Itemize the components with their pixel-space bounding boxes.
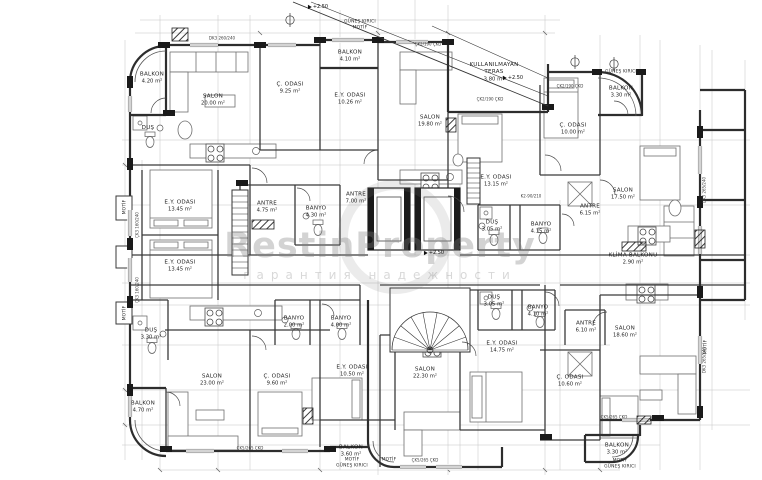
toilet-icon [337,324,347,340]
toilet-icon [313,220,323,236]
toilet-icon [535,312,545,328]
oval-table [669,200,681,216]
window [400,464,426,470]
stair-flight [232,190,248,275]
bed [258,392,302,436]
kitchen-counter [190,306,282,320]
spiral-stair [390,288,470,353]
stove-icon [206,144,224,162]
bed [640,146,680,200]
sink-icon [253,148,260,155]
shower-tray-icon [133,116,147,130]
wardrobe [568,182,592,206]
toilet-icon [491,304,501,320]
shower-tray-icon [480,207,492,219]
window [332,37,364,43]
window [190,42,218,48]
toilet-icon [145,132,155,148]
toilet-icon [147,338,157,354]
window [697,336,703,364]
toilet-icon [291,324,301,340]
roof-diagonals [293,2,548,106]
stove-icon [205,308,223,326]
sofa [400,52,452,104]
toilet-icon [489,230,499,246]
window [186,448,214,454]
sink-icon [157,125,163,131]
window [127,210,133,236]
sink-icon [303,213,309,219]
window [282,448,308,454]
bed [150,240,212,298]
sink-icon [479,223,485,229]
window [127,258,133,282]
bed [458,114,502,162]
toilet-icon [538,228,548,244]
window [268,42,296,48]
bed [470,372,522,422]
floorplan-drawing [0,0,762,480]
table [205,95,235,107]
shower-tray-icon [480,292,492,304]
wardrobe [568,352,592,376]
sink-icon [527,305,533,311]
stair-flight [467,158,480,204]
shower-tray-icon [133,316,147,330]
table [640,390,662,400]
sink-icon [160,331,166,337]
table [196,410,224,420]
sofa [640,356,696,414]
window [127,395,133,417]
sink-icon [255,310,262,317]
bed [150,170,212,228]
floorplan-page: RestinProperty гарантия надежности BALKO… [0,0,762,480]
stove-icon [637,285,655,303]
kitchen-counter [190,144,276,158]
window [697,146,703,174]
oval-table [453,154,463,166]
sofa [168,392,238,450]
sink-icon [282,317,288,323]
window [127,96,133,112]
elevator-shafts [368,188,460,250]
window [436,464,462,470]
sofa [404,412,460,456]
bed [600,396,638,438]
oval-table [178,121,192,139]
